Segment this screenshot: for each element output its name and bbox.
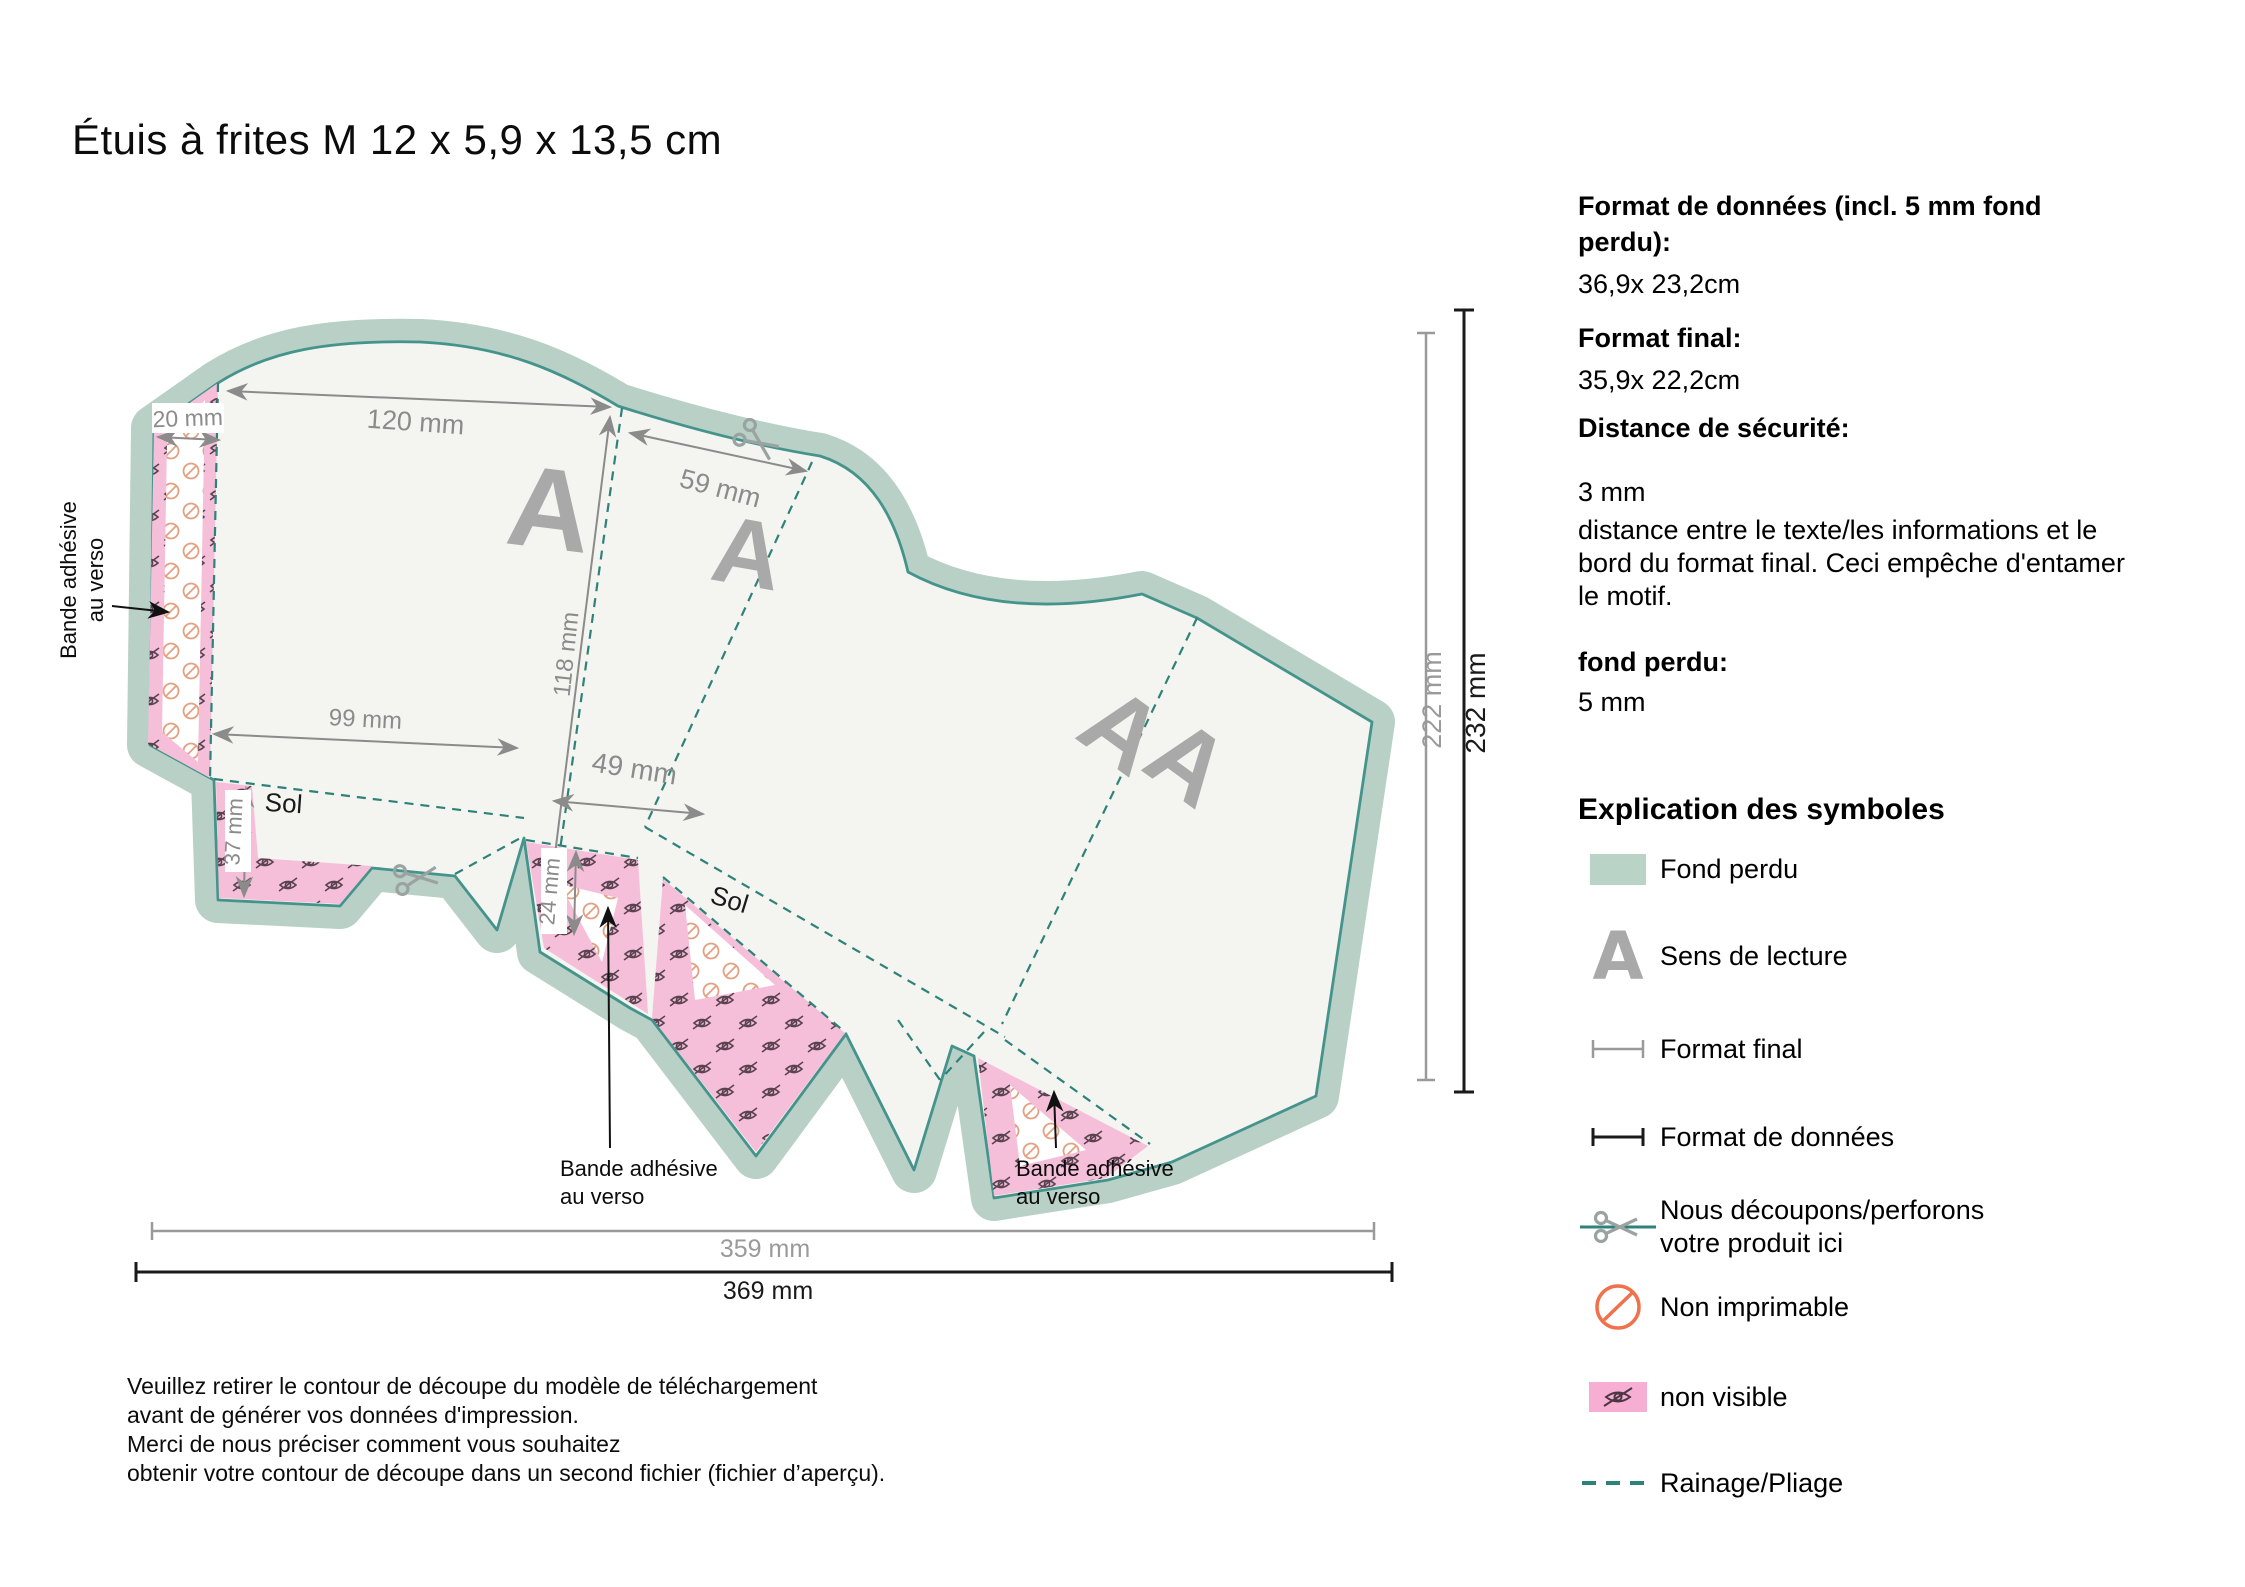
- final-format-value: 35,9x 22,2cm: [1578, 362, 2178, 398]
- adhesive-label-line: Bande adhésive: [560, 1156, 718, 1181]
- non-visible-icon: [1576, 1381, 1660, 1413]
- adhesive-label-left: Bande adhésive au verso: [56, 501, 108, 659]
- fond-perdu-swatch-icon: [1576, 854, 1660, 885]
- dim-232mm: 232 mm: [1460, 652, 1491, 753]
- safety-distance-value: 3 mm: [1578, 474, 2178, 510]
- crease-fold-dash-icon: [1576, 1477, 1660, 1489]
- dim-99mm: 99 mm: [328, 704, 403, 735]
- adhesive-label-line: Bande adhésive: [1016, 1156, 1174, 1181]
- dim-369mm: 369 mm: [723, 1277, 813, 1305]
- final-format-label: Format final:: [1578, 320, 2178, 356]
- non-printable-icon: [1576, 1279, 1660, 1335]
- legend-item-label: Non imprimable: [1660, 1291, 1849, 1324]
- format-donnees-bracket-icon: [1576, 1126, 1660, 1148]
- download-note: Veuillez retirer le contour de découpe d…: [127, 1372, 885, 1488]
- dim-37mm: 37 mm: [219, 797, 247, 865]
- sol-label: Sol: [264, 787, 304, 820]
- adhesive-label-line: au verso: [560, 1184, 644, 1209]
- legend-item-fond-perdu: Fond perdu: [1576, 846, 2216, 892]
- reading-direction-icon: A: [1592, 918, 1643, 995]
- bleed-value: 5 mm: [1578, 684, 2178, 720]
- bleed-label: fond perdu:: [1578, 644, 2178, 680]
- data-format-label: Format de données (incl. 5 mm fond perdu…: [1578, 188, 2053, 260]
- legend-item-label2: votre produit ici: [1660, 1227, 1984, 1260]
- scissors-cut-icon: [1576, 1203, 1660, 1251]
- page-title: Étuis à frites M 12 x 5,9 x 13,5 cm: [72, 116, 722, 164]
- legend-item-label: Nous découpons/perforons: [1660, 1194, 1984, 1227]
- dim-359mm: 359 mm: [720, 1235, 810, 1263]
- note-line: Veuillez retirer le contour de découpe d…: [127, 1372, 885, 1401]
- legend-item-decoupe: Nous découpons/perforons votre produit i…: [1576, 1186, 2216, 1268]
- dim-20mm: 20 mm: [152, 404, 223, 432]
- note-line: obtenir votre contour de découpe dans un…: [127, 1459, 885, 1488]
- legend-item-format-final: Format final: [1576, 1026, 2216, 1072]
- legend-item-label: Format de données: [1660, 1121, 1894, 1154]
- legend-heading: Explication des symboles: [1578, 793, 1945, 827]
- legend-item-non-visible: non visible: [1576, 1368, 2216, 1426]
- legend-item-sens-de-lecture: A Sens de lecture: [1576, 916, 2216, 996]
- safety-distance-label: Distance de sécurité:: [1578, 410, 2178, 446]
- format-final-bracket-icon: [1576, 1038, 1660, 1060]
- legend-item-non-imprimable: Non imprimable: [1576, 1278, 2216, 1336]
- legend-item-rainage: Rainage/Pliage: [1576, 1462, 2216, 1504]
- adhesive-label-line: au verso: [1016, 1184, 1100, 1209]
- reading-a-icon: A: [501, 441, 599, 578]
- legend-item-label: Rainage/Pliage: [1660, 1467, 1843, 1500]
- note-line: Merci de nous préciser comment vous souh…: [127, 1430, 885, 1459]
- safety-distance-description: distance entre le texte/les informations…: [1578, 514, 2143, 613]
- adhesive-label-line: Bande adhésive: [56, 501, 81, 659]
- dim-222mm: 222 mm: [1417, 651, 1447, 749]
- note-line: avant de générer vos données d'impressio…: [127, 1401, 885, 1430]
- adhesive-label-bottom-1: Bande adhésive au verso: [560, 1156, 718, 1209]
- legend-item-label: Format final: [1660, 1033, 1803, 1066]
- adhesive-label-line: au verso: [83, 538, 108, 622]
- data-format-value: 36,9x 23,2cm: [1578, 266, 2178, 302]
- legend-item-label: Fond perdu: [1660, 853, 1798, 886]
- legend-item-format-de-donnees: Format de données: [1576, 1114, 2216, 1160]
- legend-item-label: non visible: [1660, 1381, 1788, 1414]
- legend-item-label: Sens de lecture: [1660, 940, 1848, 973]
